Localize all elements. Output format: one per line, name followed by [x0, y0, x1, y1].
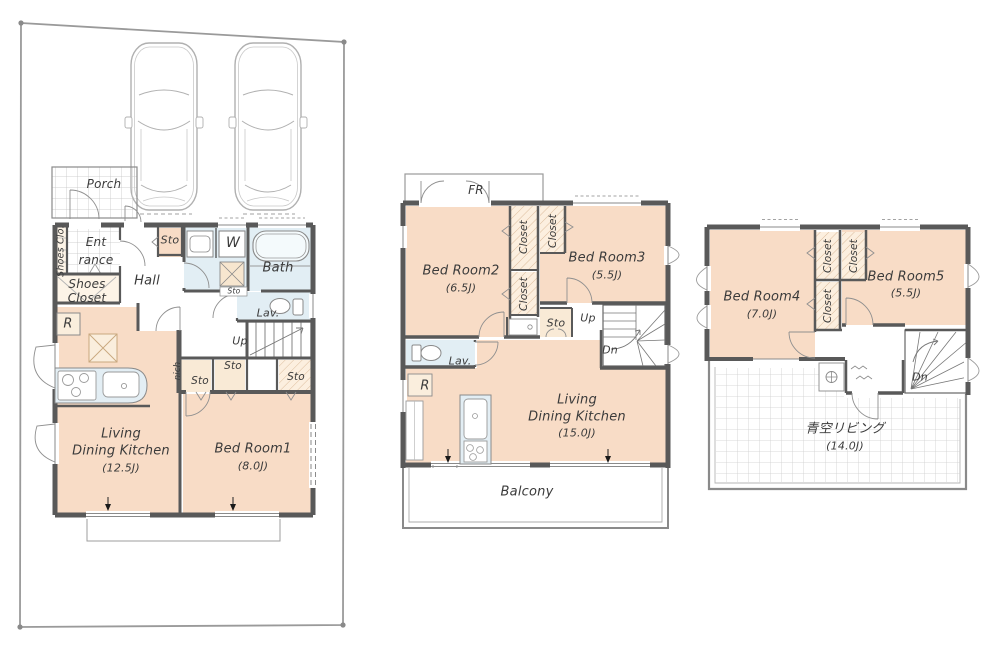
label-dn-2f: Dn [602, 345, 618, 356]
label-sto-1f-e: Sto [287, 372, 305, 383]
label-entrance-2: rance [79, 254, 114, 266]
label-sto-2f: Sto [547, 318, 566, 329]
car-icon [229, 43, 307, 210]
label-shoes-clo: Shoes Clo. [56, 225, 66, 277]
label-bath: Bath [262, 262, 293, 275]
floor-plan-drawing [0, 0, 1000, 653]
label-bedroom2: Bed Room2 [423, 265, 500, 278]
floor1-plan [34, 167, 317, 541]
kitchen-island-2f [460, 395, 491, 464]
label-ldk-1f-size: (12.5J) [102, 463, 140, 474]
label-sky-living-size: (14.0J) [826, 441, 864, 452]
stairs-2f [603, 305, 665, 366]
label-closet-2f-b: Closet [519, 277, 530, 311]
label-porch: Porch [87, 178, 122, 190]
label-bedroom1-size: (8.0J) [238, 461, 269, 472]
label-ldk-2f-line1: Living [557, 394, 597, 407]
label-fr: FR [468, 184, 484, 196]
label-nich: nich [174, 362, 183, 381]
label-closet-2f-a: Closet [519, 220, 530, 254]
label-ldk-1f-line2: Dining Kitchen [72, 445, 170, 458]
storage-3f [851, 366, 872, 379]
label-sto-1f-a: Sto [161, 235, 180, 246]
floor2-plan [399, 174, 679, 528]
toilet-icon-2f [412, 345, 441, 361]
label-bedroom5: Bed Room5 [868, 271, 945, 284]
label-ldk-2f-size: (15.0J) [558, 428, 596, 439]
label-closet-2f-c: Closet [548, 214, 559, 248]
label-closet-3f-a: Closet [823, 239, 834, 273]
label-lav-2f: Lav. [449, 356, 472, 367]
label-bedroom4: Bed Room4 [724, 291, 801, 304]
label-closet-3f-b: Closet [823, 289, 834, 323]
label-balcony: Balcony [501, 486, 554, 499]
kitchen-counter-1f [55, 368, 147, 403]
label-closet-3f-c: Closet [849, 239, 860, 273]
label-sto-1f-b: Sto [228, 287, 241, 295]
label-entrance-1: Ent [86, 236, 107, 248]
label-bedroom1: Bed Room1 [215, 443, 292, 456]
table-1f [89, 334, 117, 362]
floor-plan-page: Porch Shoes Clo. Ent rance Shoes Closet … [0, 0, 1000, 653]
label-bedroom5-size: (5.5J) [891, 288, 922, 299]
label-bedroom3-size: (5.5J) [592, 270, 623, 281]
label-bedroom2-size: (6.5J) [446, 283, 477, 294]
stairs-1f [247, 322, 311, 358]
label-bedroom4-size: (7.0J) [747, 309, 778, 320]
label-ldk-1f-line1: Living [101, 428, 141, 441]
label-sto-1f-c: Sto [191, 376, 209, 387]
label-refrigerator-1f: R [63, 318, 72, 331]
label-hall: Hall [134, 275, 160, 288]
label-ldk-2f-line2: Dining Kitchen [528, 411, 626, 424]
label-up-1f: Up [232, 336, 247, 347]
outdoor-faucet-icon [819, 363, 844, 391]
label-shoes-closet-1: Shoes [68, 278, 105, 290]
stairs-3f [905, 330, 968, 393]
label-bedroom3: Bed Room3 [569, 252, 646, 265]
label-washing-machine: W [226, 236, 240, 250]
label-lav-1f: Lav. [257, 308, 280, 319]
label-sto-1f-d: Sto [224, 361, 242, 372]
label-shoes-closet-2: Closet [68, 292, 107, 304]
pantry-shelf-2f [406, 401, 423, 460]
label-dn-3f: Dn [912, 372, 928, 383]
label-up-2f: Up [580, 313, 595, 324]
label-sky-living: 青空リビング [805, 423, 884, 436]
label-refrigerator-2f: R [420, 380, 429, 393]
vanity-2f [509, 319, 537, 335]
parked-cars [125, 43, 307, 214]
